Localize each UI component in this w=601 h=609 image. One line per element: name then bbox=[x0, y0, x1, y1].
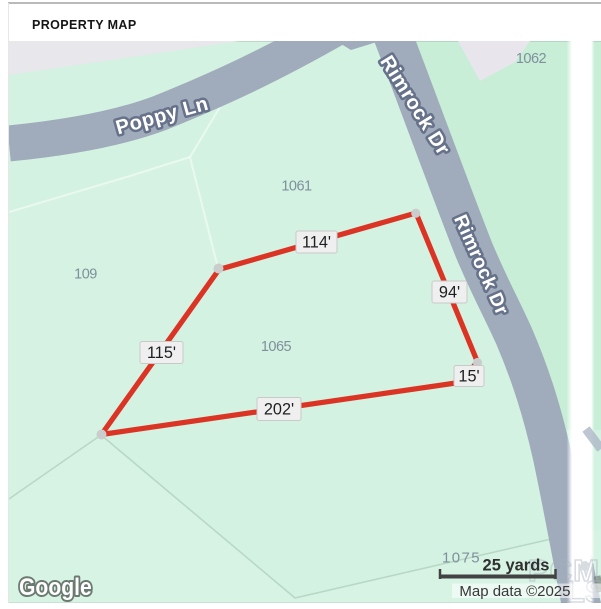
svg-text:115': 115' bbox=[147, 344, 176, 362]
svg-text:114': 114' bbox=[302, 234, 331, 252]
svg-text:®: ® bbox=[581, 561, 589, 573]
svg-text:1061: 1061 bbox=[281, 179, 312, 195]
svg-text:1062: 1062 bbox=[516, 51, 547, 67]
svg-text:15': 15' bbox=[458, 368, 479, 386]
svg-text:1065: 1065 bbox=[261, 339, 292, 355]
svg-text:94': 94' bbox=[439, 284, 460, 302]
svg-text:109: 109 bbox=[74, 267, 97, 283]
svg-text:Google: Google bbox=[19, 574, 92, 601]
svg-text:Map data ©2025: Map data ©2025 bbox=[459, 583, 570, 600]
svg-text:25 yards: 25 yards bbox=[483, 557, 550, 575]
svg-text:202': 202' bbox=[264, 401, 294, 419]
svg-text:1075: 1075 bbox=[442, 550, 481, 567]
